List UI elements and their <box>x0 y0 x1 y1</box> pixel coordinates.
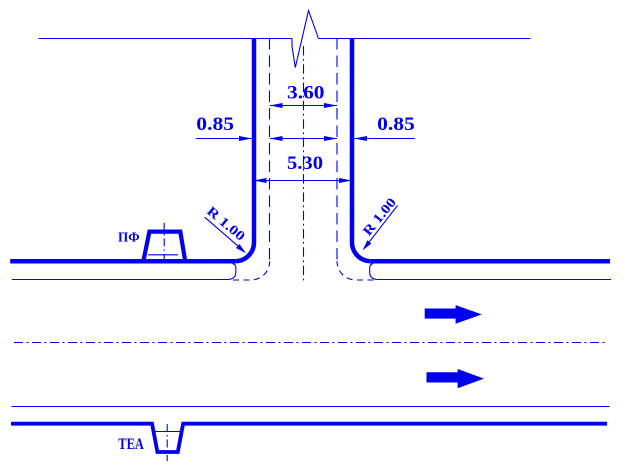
svg-text:0.85: 0.85 <box>377 114 415 135</box>
svg-text:TEA: TEA <box>118 436 144 453</box>
svg-text:R 1.00: R 1.00 <box>360 195 400 239</box>
svg-text:0.85: 0.85 <box>196 114 234 135</box>
svg-text:R 1.00: R 1.00 <box>204 203 248 244</box>
svg-text:ПФ: ПФ <box>118 230 140 245</box>
svg-text:5.30: 5.30 <box>287 153 323 174</box>
svg-text:3.60: 3.60 <box>287 82 325 103</box>
